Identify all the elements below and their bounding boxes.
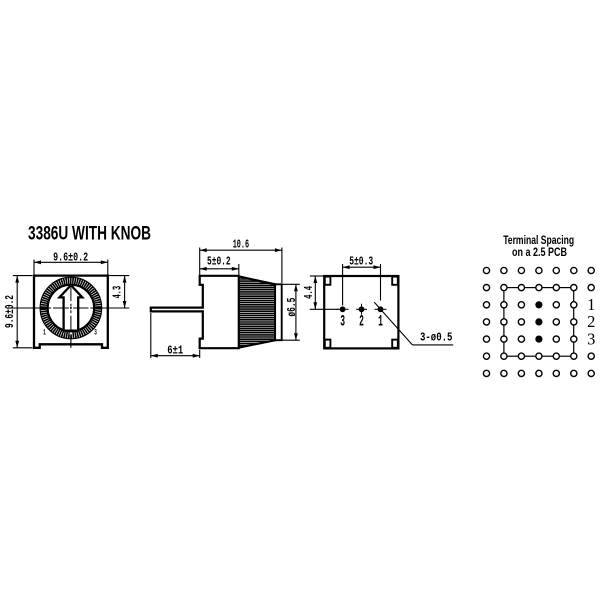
svg-text:1: 1 <box>43 328 46 338</box>
svg-text:9.6±0.2: 9.6±0.2 <box>3 295 17 328</box>
svg-text:5±0.3: 5±0.3 <box>349 255 373 269</box>
svg-text:1: 1 <box>378 311 383 330</box>
svg-text:9.6±0.2: 9.6±0.2 <box>53 250 88 264</box>
svg-text:5±0.2: 5±0.2 <box>207 255 231 269</box>
svg-text:on a 2.5 PCB: on a 2.5 PCB <box>512 247 567 259</box>
svg-text:2: 2 <box>359 311 364 330</box>
svg-text:3-ø0.5: 3-ø0.5 <box>420 330 453 344</box>
svg-text:ø6.5: ø6.5 <box>285 298 299 317</box>
svg-text:2: 2 <box>587 312 595 331</box>
svg-text:4.4: 4.4 <box>302 286 316 299</box>
svg-text:10.6: 10.6 <box>233 238 249 252</box>
svg-text:3386U WITH KNOB: 3386U WITH KNOB <box>28 224 151 245</box>
svg-text:3: 3 <box>340 311 345 330</box>
svg-text:Terminal Spacing: Terminal Spacing <box>503 235 574 247</box>
svg-text:4.3: 4.3 <box>111 286 125 299</box>
svg-text:3: 3 <box>587 329 595 348</box>
svg-text:6±1: 6±1 <box>167 344 183 358</box>
svg-text:3: 3 <box>94 328 97 338</box>
